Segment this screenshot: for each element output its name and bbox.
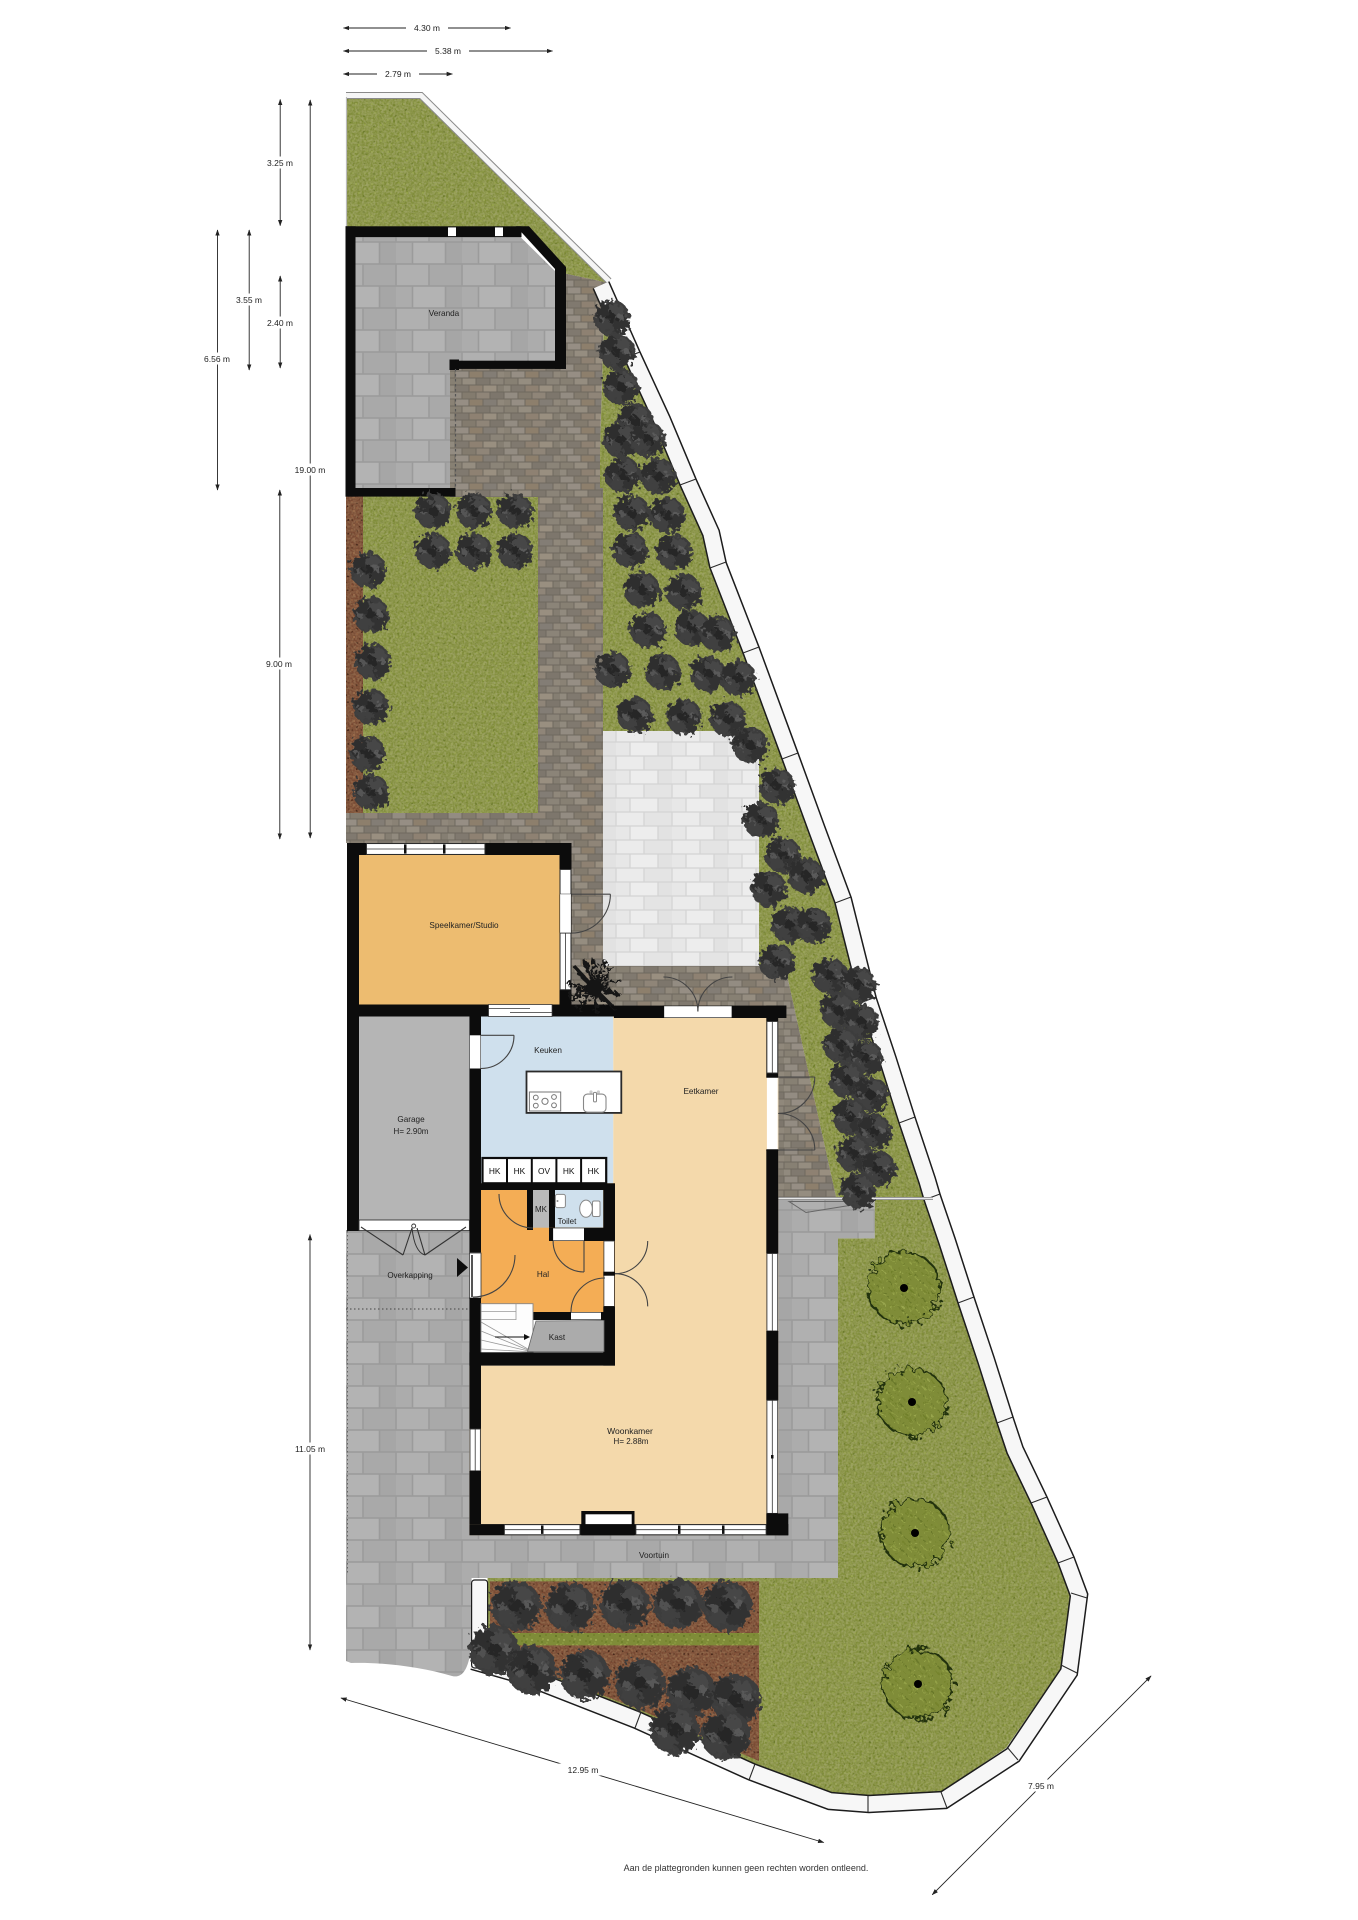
- svg-text:11.05 m: 11.05 m: [295, 1444, 325, 1454]
- svg-text:2.40 m: 2.40 m: [267, 318, 293, 328]
- svg-text:Woonkamer: Woonkamer: [607, 1426, 653, 1436]
- svg-text:7.95 m: 7.95 m: [1028, 1781, 1054, 1791]
- svg-text:3.25 m: 3.25 m: [267, 158, 293, 168]
- svg-text:6.56 m: 6.56 m: [204, 354, 230, 364]
- svg-text:Aan de plattegronden kunnen ge: Aan de plattegronden kunnen geen rechten…: [624, 1863, 869, 1873]
- svg-text:Voortuin: Voortuin: [639, 1551, 669, 1560]
- svg-text:Overkapping: Overkapping: [387, 1271, 432, 1280]
- svg-text:Toilet: Toilet: [558, 1217, 577, 1226]
- svg-text:HK: HK: [563, 1166, 575, 1176]
- svg-text:Keuken: Keuken: [534, 1046, 562, 1055]
- svg-text:HK: HK: [588, 1166, 600, 1176]
- svg-text:Veranda: Veranda: [429, 309, 460, 318]
- svg-text:3.55 m: 3.55 m: [236, 295, 262, 305]
- svg-text:OV: OV: [538, 1166, 551, 1176]
- svg-text:H= 2.88m: H= 2.88m: [614, 1437, 649, 1446]
- svg-text:Kast: Kast: [549, 1333, 566, 1342]
- svg-text:Hal: Hal: [537, 1270, 549, 1279]
- svg-text:H= 2.90m: H= 2.90m: [394, 1127, 429, 1136]
- svg-text:4.30 m: 4.30 m: [414, 23, 440, 33]
- svg-text:2.79 m: 2.79 m: [385, 69, 411, 79]
- svg-text:HK: HK: [489, 1166, 501, 1176]
- svg-text:Eetkamer: Eetkamer: [683, 1087, 718, 1096]
- svg-text:Garage: Garage: [397, 1115, 425, 1124]
- svg-text:MK: MK: [535, 1205, 548, 1214]
- svg-text:HK: HK: [514, 1166, 526, 1176]
- svg-text:19.00 m: 19.00 m: [295, 465, 326, 475]
- svg-text:12.95 m: 12.95 m: [568, 1765, 599, 1775]
- svg-text:9.00 m: 9.00 m: [266, 659, 292, 669]
- svg-text:Speelkamer/Studio: Speelkamer/Studio: [429, 921, 499, 930]
- svg-text:5.38 m: 5.38 m: [435, 46, 461, 56]
